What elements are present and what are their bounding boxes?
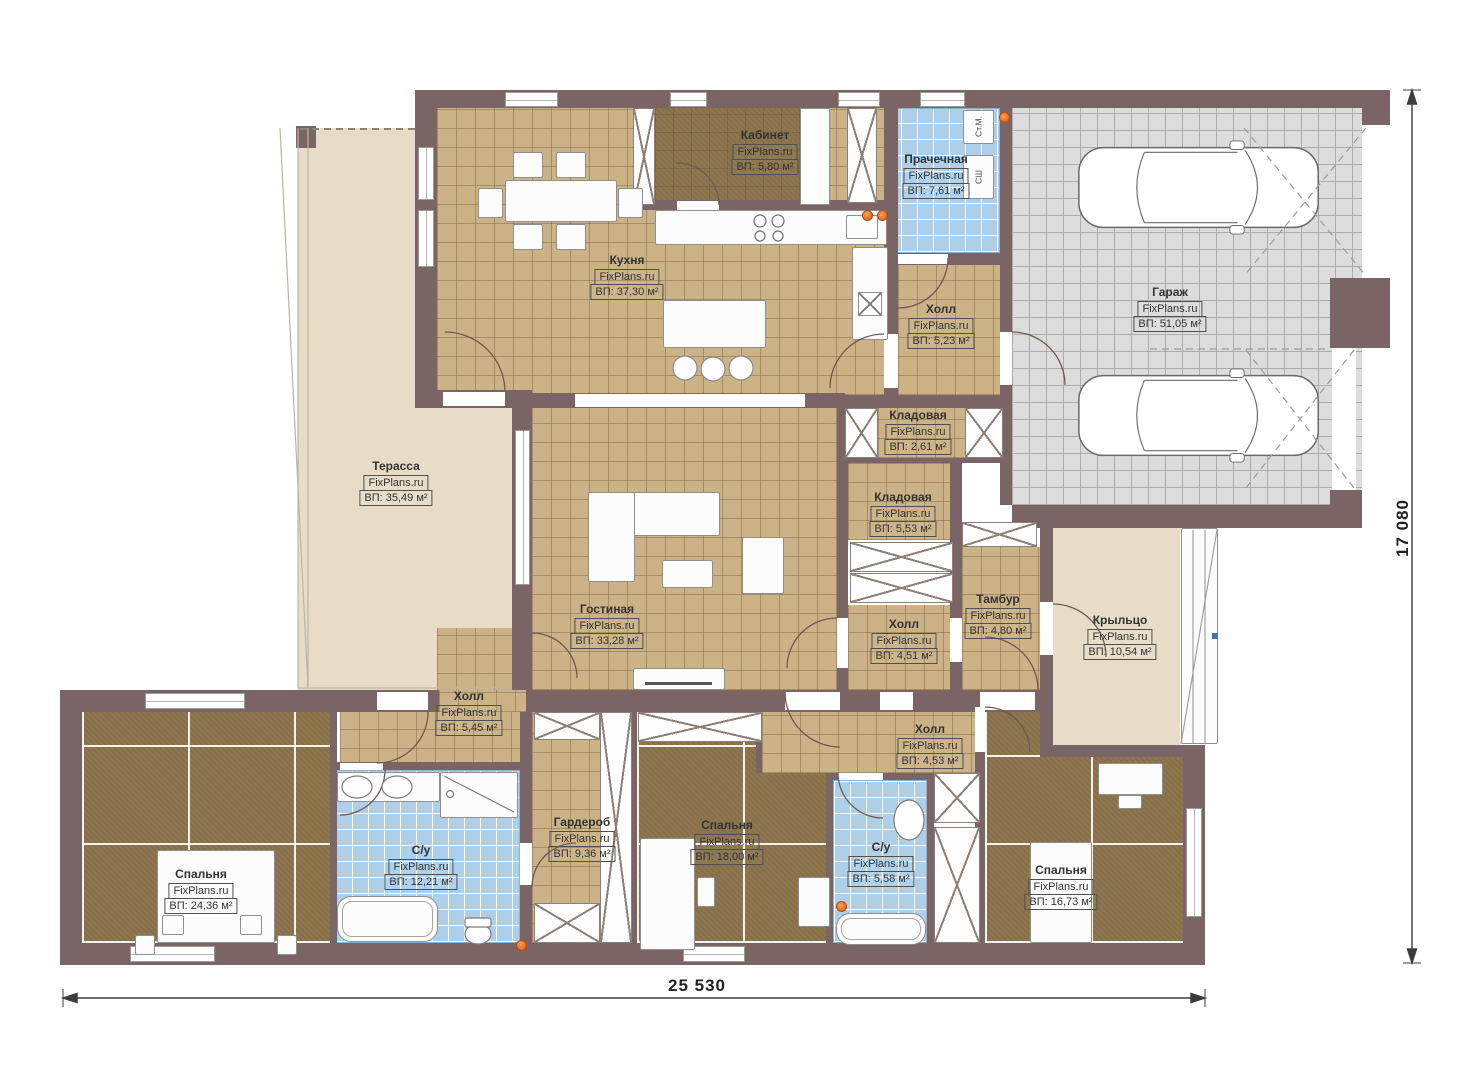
room-area: ВП: 4,80 м²	[964, 623, 1031, 639]
room-name: Холл	[870, 617, 937, 631]
room-label-garazh: ГаражFixPlans.ruВП: 51,05 м²	[1133, 285, 1206, 332]
room-name: Холл	[896, 722, 963, 736]
room-area: ВП: 2,61 м²	[884, 439, 951, 455]
door-arcs	[340, 163, 1106, 887]
room-label-sp2436: СпальняFixPlans.ruВП: 24,36 м²	[164, 867, 237, 914]
room-area: ВП: 4,53 м²	[896, 753, 963, 769]
watermark: FixPlans.ru	[388, 859, 453, 875]
room-area: ВП: 35,49 м²	[359, 490, 432, 506]
room-name: Прачечная	[902, 152, 969, 166]
room-area: ВП: 51,05 м²	[1133, 316, 1206, 332]
watermark: FixPlans.ru	[168, 883, 233, 899]
room-label-prachechnaya: ПрачечнаяFixPlans.ruВП: 7,61 м²	[902, 152, 969, 199]
room-label-krylco: КрыльцоFixPlans.ruВП: 10,54 м²	[1083, 613, 1156, 660]
room-label-kuhnya: КухняFixPlans.ruВП: 37,30 м²	[590, 253, 663, 300]
room-name: С/у	[384, 843, 457, 857]
room-label-garderob: ГардеробFixPlans.ruВП: 9,36 м²	[548, 815, 615, 862]
watermark: FixPlans.ru	[363, 475, 428, 491]
watermark: FixPlans.ru	[965, 608, 1030, 624]
watermark: FixPlans.ru	[848, 856, 913, 872]
room-area: ВП: 18,00 м²	[690, 849, 763, 865]
watermark: FixPlans.ru	[1087, 629, 1152, 645]
watermark: FixPlans.ru	[897, 738, 962, 754]
room-name: Тамбур	[964, 592, 1031, 606]
room-name: Крыльцо	[1083, 613, 1156, 627]
terrace-edge-lines	[280, 128, 512, 688]
room-name: Спальня	[1024, 863, 1097, 877]
dimension-node	[1212, 633, 1218, 639]
watermark: FixPlans.ru	[903, 168, 968, 184]
room-label-sp1673: СпальняFixPlans.ruВП: 16,73 м²	[1024, 863, 1097, 910]
room-label-holl523: ХоллFixPlans.ruВП: 5,23 м²	[907, 302, 974, 349]
room-label-su1221: С/уFixPlans.ruВП: 12,21 м²	[384, 843, 457, 890]
watermark: FixPlans.ru	[574, 618, 639, 634]
room-area: ВП: 5,58 м²	[847, 871, 914, 887]
dimension-width-label: 25 530	[668, 976, 726, 996]
room-name: С/у	[847, 840, 914, 854]
room-area: ВП: 4,51 м²	[870, 648, 937, 664]
room-area: ВП: 5,80 м²	[731, 159, 798, 175]
room-name: Гараж	[1133, 285, 1206, 299]
watermark: FixPlans.ru	[1137, 301, 1202, 317]
stove-burners-icon	[754, 215, 784, 241]
watermark: FixPlans.ru	[908, 318, 973, 334]
room-area: ВП: 33,28 м²	[570, 633, 643, 649]
watermark: FixPlans.ru	[732, 144, 797, 160]
room-area: ВП: 5,23 м²	[907, 333, 974, 349]
room-label-tambur: ТамбурFixPlans.ruВП: 4,80 м²	[964, 592, 1031, 639]
watermark: FixPlans.ru	[871, 633, 936, 649]
room-area: ВП: 5,45 м²	[435, 720, 502, 736]
watermark: FixPlans.ru	[549, 831, 614, 847]
room-label-holl453: ХоллFixPlans.ruВП: 4,53 м²	[896, 722, 963, 769]
room-name: Холл	[435, 689, 502, 703]
room-name: Терасса	[359, 459, 432, 473]
room-label-holl451: ХоллFixPlans.ruВП: 4,51 м²	[870, 617, 937, 664]
room-label-terassa: ТерассаFixPlans.ruВП: 35,49 м²	[359, 459, 432, 506]
room-name: Спальня	[164, 867, 237, 881]
watermark: FixPlans.ru	[594, 269, 659, 285]
room-area: ВП: 7,61 м²	[902, 183, 969, 199]
room-label-kld553: КладоваяFixPlans.ruВП: 5,53 м²	[869, 490, 936, 537]
room-area: ВП: 10,54 м²	[1083, 644, 1156, 660]
room-name: Кладовая	[884, 408, 951, 422]
room-label-kld261: КладоваяFixPlans.ruВП: 2,61 м²	[884, 408, 951, 455]
room-label-su558: С/уFixPlans.ruВП: 5,58 м²	[847, 840, 914, 887]
room-name: Гардероб	[548, 815, 615, 829]
washing-machine-label: Ст.М.	[963, 110, 994, 144]
room-label-gostinaya: ГостинаяFixPlans.ruВП: 33,28 м²	[570, 602, 643, 649]
watermark: FixPlans.ru	[870, 506, 935, 522]
room-area: ВП: 24,36 м²	[164, 898, 237, 914]
room-area: ВП: 12,21 м²	[384, 874, 457, 890]
room-label-kabinet: КабинетFixPlans.ruВП: 5,80 м²	[731, 128, 798, 175]
watermark: FixPlans.ru	[694, 834, 759, 850]
watermark: FixPlans.ru	[1028, 879, 1093, 895]
room-name: Холл	[907, 302, 974, 316]
room-area: ВП: 16,73 м²	[1024, 894, 1097, 910]
dimension-height-label: 17 080	[1393, 499, 1413, 557]
room-name: Кухня	[590, 253, 663, 267]
room-area: ВП: 37,30 м²	[590, 284, 663, 300]
room-name: Гостиная	[570, 602, 643, 616]
room-label-holl545: ХоллFixPlans.ruВП: 5,45 м²	[435, 689, 502, 736]
bar-stools-icon	[673, 356, 753, 381]
room-name: Кабинет	[731, 128, 798, 142]
watermark: FixPlans.ru	[885, 424, 950, 440]
room-area: ВП: 5,53 м²	[869, 521, 936, 537]
porch-steps-lines	[1181, 530, 1217, 744]
room-name: Спальня	[690, 818, 763, 832]
floor-plan: 25 530 17 080 Ст.М. СШ КабинетFixPlans.r…	[0, 0, 1474, 1080]
watermark: FixPlans.ru	[436, 705, 501, 721]
room-name: Кладовая	[869, 490, 936, 504]
room-area: ВП: 9,36 м²	[548, 846, 615, 862]
room-label-sp1800: СпальняFixPlans.ruВП: 18,00 м²	[690, 818, 763, 865]
